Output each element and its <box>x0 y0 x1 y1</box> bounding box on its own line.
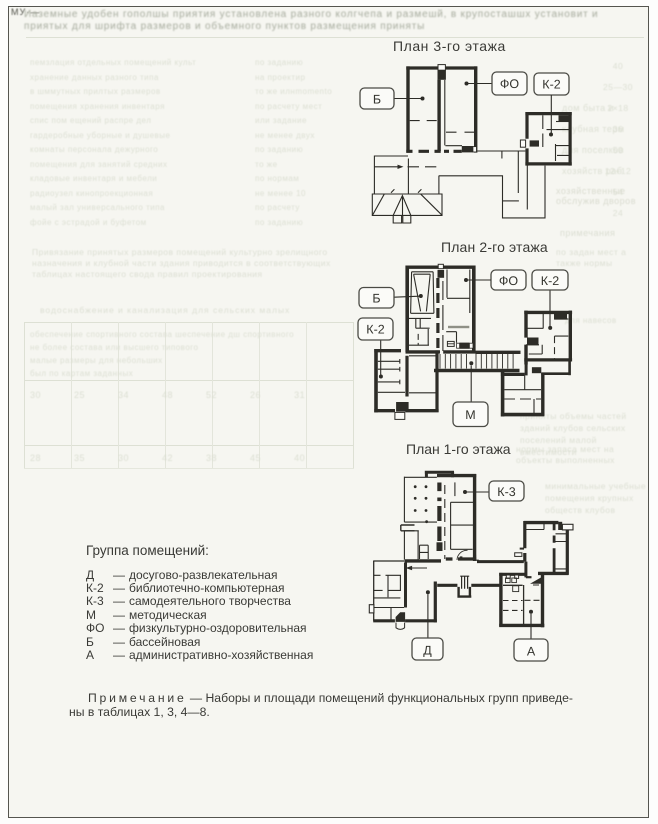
svg-text:Д: Д <box>423 644 432 658</box>
svg-text:Б: Б <box>373 93 381 107</box>
svg-text:А: А <box>527 645 536 659</box>
svg-text:К-2: К-2 <box>542 78 560 92</box>
svg-text:Б: Б <box>372 292 380 306</box>
svg-text:ФО: ФО <box>500 77 520 91</box>
svg-text:К-2: К-2 <box>366 323 384 337</box>
svg-text:М: М <box>465 408 475 422</box>
svg-text:К-2: К-2 <box>541 274 559 288</box>
svg-text:ФО: ФО <box>499 274 519 288</box>
svg-text:К-3: К-3 <box>497 485 515 499</box>
